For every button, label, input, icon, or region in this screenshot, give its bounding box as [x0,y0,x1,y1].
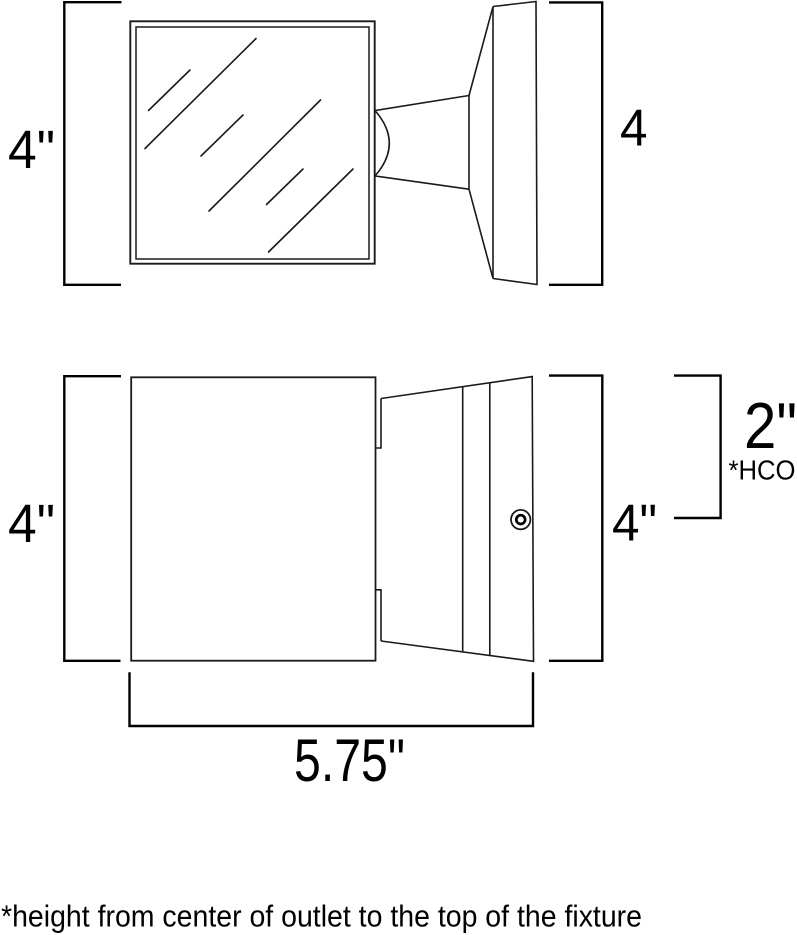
svg-text:5.75": 5.75" [294,726,405,794]
svg-text:4": 4" [612,495,657,553]
svg-text:4": 4" [8,494,55,554]
svg-text:*height from center of outlet: *height from center of outlet to the top… [1,899,642,934]
svg-text:4: 4 [620,99,648,157]
svg-text:*HCO: *HCO [729,454,796,485]
svg-text:4": 4" [8,120,55,180]
svg-text:2": 2" [744,389,797,462]
